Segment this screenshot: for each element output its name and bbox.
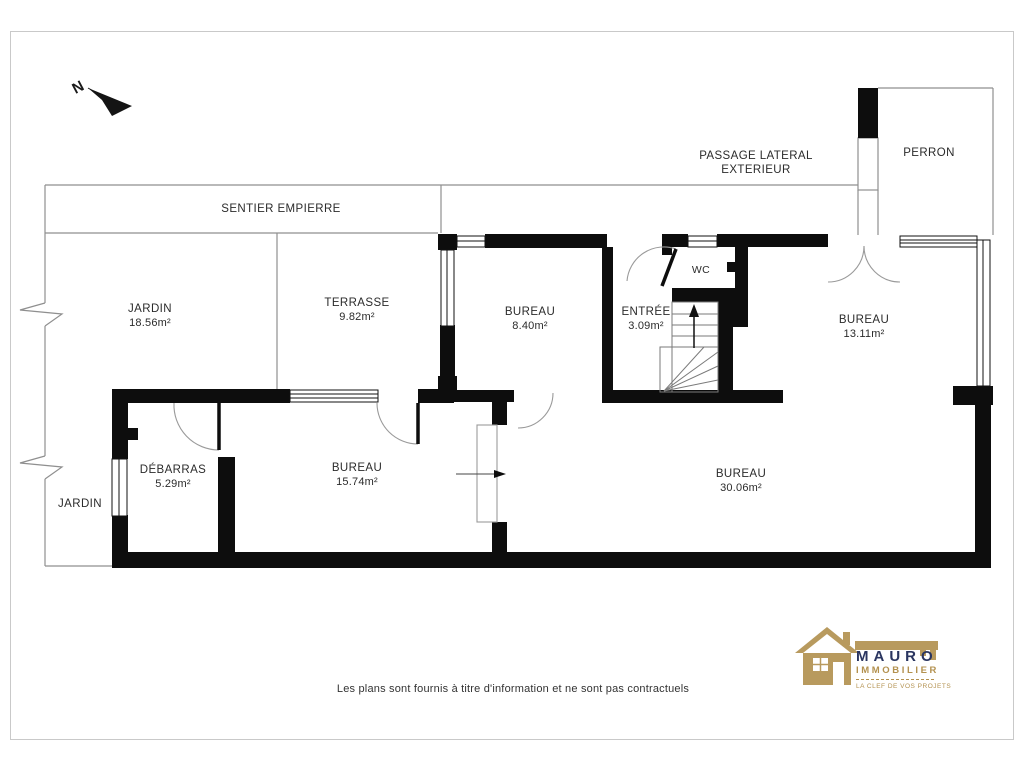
label-passage-lateral: PASSAGE LATERAL EXTERIEUR xyxy=(699,149,813,177)
door-arc-icon xyxy=(377,403,418,444)
label-terrasse: TERRASSE 9.82m² xyxy=(324,296,389,324)
floor-plan-page: N SENTIER EMPIERRE PASSAGE LATERAL EXTER… xyxy=(0,0,1024,768)
window-icon xyxy=(977,240,990,386)
room-label-wc: WC xyxy=(692,263,710,277)
room-label-bureau-nw: BUREAU 8.40m² xyxy=(505,305,555,333)
window-icon xyxy=(112,459,127,516)
window-icon xyxy=(688,236,717,247)
break-mark-icon xyxy=(20,456,62,479)
logo-subtitle-text: IMMOBILIER xyxy=(856,665,939,676)
agency-logo: MAURO IMMOBILIER LA CLEF DE VOS PROJETS xyxy=(793,620,993,700)
stairs-up-arrow-icon xyxy=(689,304,699,348)
disclaimer-text: Les plans sont fournis à titre d'informa… xyxy=(337,683,689,695)
room-label-debarras: DÉBARRAS 5.29m² xyxy=(140,463,206,491)
logo-brand-text: MAURO xyxy=(856,648,938,665)
door-arc-icon xyxy=(174,403,219,450)
french-door-arc-icon xyxy=(828,246,864,282)
french-door-arc-icon xyxy=(864,246,900,282)
logo-tagline-text: LA CLEF DE VOS PROJETS xyxy=(856,683,951,690)
doors xyxy=(174,246,900,522)
room-label-entree: ENTRÉE 3.09m² xyxy=(621,305,670,333)
label-jardin-top: JARDIN 18.56m² xyxy=(128,302,172,330)
logo-divider xyxy=(856,679,934,680)
window-icon xyxy=(290,390,378,402)
label-jardin-side: JARDIN xyxy=(58,497,102,511)
label-perron: PERRON xyxy=(903,146,955,160)
label-sentier-empierre: SENTIER EMPIERRE xyxy=(221,202,341,216)
room-label-bureau-ne: BUREAU 13.11m² xyxy=(839,313,889,341)
north-arrow-icon: N xyxy=(69,78,132,116)
sliding-door-icon xyxy=(456,425,506,522)
svg-text:N: N xyxy=(69,78,87,98)
windows xyxy=(112,236,990,516)
window-icon xyxy=(900,236,977,247)
window-icon xyxy=(457,236,485,247)
break-mark-icon xyxy=(20,303,62,326)
window-icon xyxy=(441,250,454,326)
room-label-bureau-sw: BUREAU 15.74m² xyxy=(332,461,382,489)
room-label-bureau-se: BUREAU 30.06m² xyxy=(716,467,766,495)
door-arc-icon xyxy=(518,393,553,428)
